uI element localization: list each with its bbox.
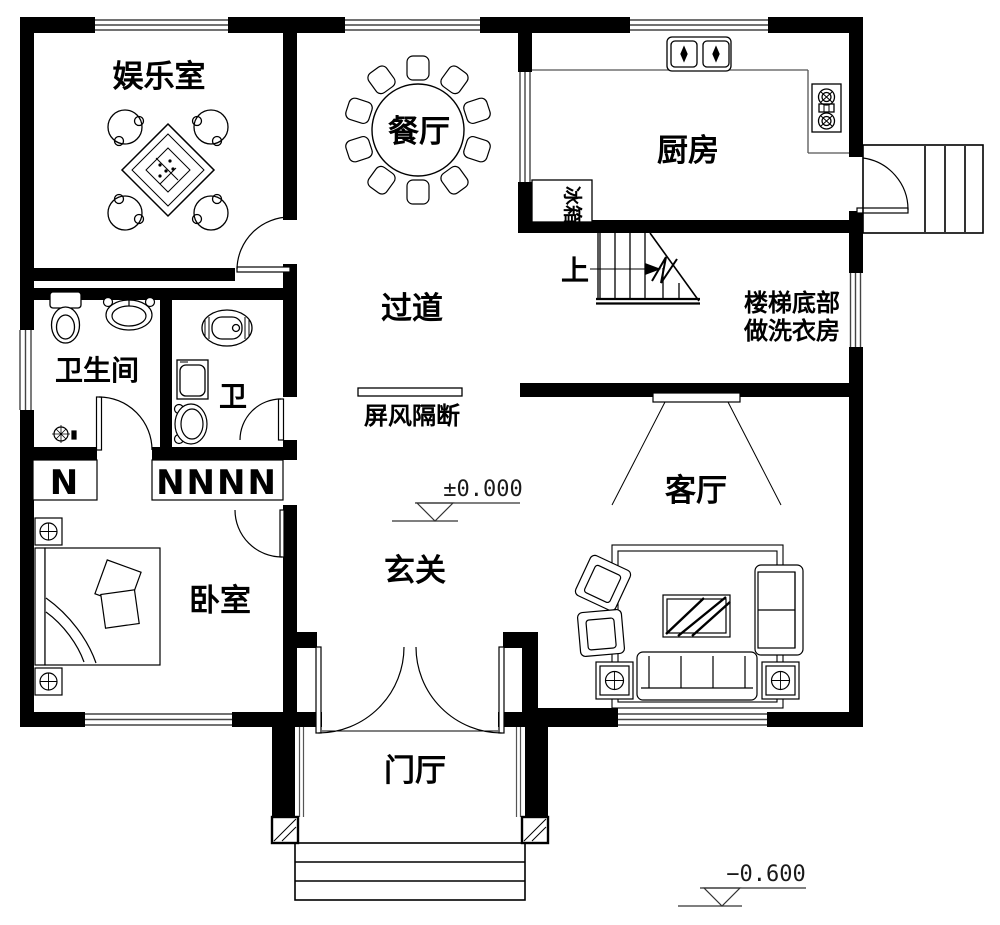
label-entertainment: 娱乐室 — [113, 59, 206, 95]
closets: N NNNN — [33, 460, 283, 503]
screen-partition — [358, 388, 462, 396]
label-screen-partition: 屏风隔断 — [364, 402, 460, 430]
armchairs — [574, 554, 632, 657]
wardrobe-symbol-single: N — [50, 463, 80, 503]
washing-machine — [177, 360, 208, 399]
label-dining: 餐厅 — [388, 114, 450, 150]
bed — [35, 548, 160, 665]
label-bedroom: 卧室 — [189, 583, 251, 619]
coffee-table — [663, 595, 730, 637]
door-kitchen-side — [857, 158, 908, 213]
door-entry-double — [316, 647, 504, 733]
label-bathroom: 卫生间 — [55, 354, 139, 387]
level-marker-entry — [392, 503, 520, 521]
toilet-fixture — [50, 292, 81, 343]
floor-plan-page: 冰箱 N NNNN — [0, 0, 1000, 925]
living-room-set — [574, 393, 803, 708]
porch-columns — [272, 817, 548, 843]
label-laundry-2: 做洗衣房 — [743, 317, 840, 345]
floor-plan-drawing: 冰箱 N NNNN — [0, 0, 1000, 925]
kitchen-sink — [667, 37, 731, 71]
label-level-entry: ±0.000 — [443, 477, 522, 502]
floor-drain-lamp — [52, 425, 76, 443]
label-laundry-1: 楼梯底部 — [744, 289, 840, 317]
stove — [812, 84, 841, 132]
label-toilet: 卫 — [219, 380, 247, 413]
door-entertainment — [237, 217, 290, 272]
loveseat — [755, 565, 803, 655]
bathtub — [202, 310, 252, 346]
label-stairs-up: 上 — [561, 254, 589, 287]
stairs — [590, 233, 700, 304]
toilet-room-sink — [175, 404, 208, 444]
porch-steps — [295, 843, 525, 900]
label-kitchen: 厨房 — [657, 133, 719, 169]
label-foyer: 门厅 — [384, 753, 446, 789]
label-level-outside: −0.600 — [726, 862, 805, 887]
mahjong-set — [108, 110, 228, 230]
wardrobe-symbol-row: NNNN — [156, 463, 278, 503]
fridge-label: 冰箱 — [561, 186, 584, 224]
door-bathroom — [97, 397, 153, 450]
label-hallway: 过道 — [381, 291, 443, 327]
door-bedroom — [235, 510, 284, 557]
label-living: 客厅 — [665, 473, 727, 509]
side-entry-steps — [863, 145, 983, 233]
bathroom-sink — [104, 298, 155, 331]
label-entry: 玄关 — [384, 553, 446, 589]
sofa — [637, 652, 757, 700]
fridge: 冰箱 — [532, 180, 592, 224]
level-marker-outside — [678, 888, 806, 906]
